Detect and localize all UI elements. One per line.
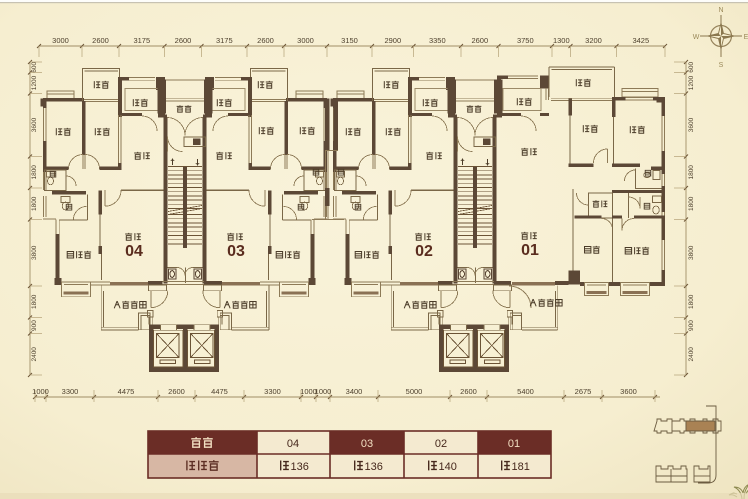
svg-text:03: 03 <box>361 438 373 450</box>
svg-text:3800: 3800 <box>31 245 38 260</box>
svg-text:3400: 3400 <box>346 387 363 396</box>
svg-text:2400: 2400 <box>688 347 695 362</box>
svg-text:2600: 2600 <box>460 387 477 396</box>
svg-text:4475: 4475 <box>211 387 228 396</box>
svg-text:3175: 3175 <box>216 36 233 45</box>
svg-text:900: 900 <box>31 320 38 331</box>
svg-text:N: N <box>718 7 723 14</box>
svg-text:1000: 1000 <box>32 387 49 396</box>
svg-text:2675: 2675 <box>575 387 592 396</box>
svg-text:3800: 3800 <box>688 245 695 260</box>
svg-text:136: 136 <box>365 461 383 473</box>
svg-text:3300: 3300 <box>62 387 79 396</box>
svg-text:5000: 5000 <box>406 387 423 396</box>
svg-text:3425: 3425 <box>632 36 649 45</box>
svg-text:3300: 3300 <box>264 387 281 396</box>
svg-text:2600: 2600 <box>92 36 109 45</box>
svg-text:600: 600 <box>31 61 38 72</box>
svg-text:4475: 4475 <box>118 387 135 396</box>
svg-text:1200: 1200 <box>688 75 695 90</box>
svg-text:1800: 1800 <box>31 165 38 180</box>
svg-text:W: W <box>693 34 700 41</box>
svg-text:3750: 3750 <box>517 36 534 45</box>
svg-text:1800: 1800 <box>31 196 38 211</box>
svg-text:3150: 3150 <box>341 36 358 45</box>
svg-text:2600: 2600 <box>257 36 274 45</box>
svg-text:181: 181 <box>512 461 530 473</box>
svg-text:03: 03 <box>227 243 245 260</box>
svg-text:04: 04 <box>125 243 143 260</box>
svg-text:2600: 2600 <box>175 36 192 45</box>
svg-text:1200: 1200 <box>31 75 38 90</box>
svg-text:2600: 2600 <box>168 387 185 396</box>
svg-text:04: 04 <box>287 438 299 450</box>
svg-text:900: 900 <box>688 320 695 331</box>
svg-text:01: 01 <box>521 242 539 259</box>
svg-text:02: 02 <box>435 438 447 450</box>
svg-text:3200: 3200 <box>585 36 602 45</box>
svg-text:1800: 1800 <box>688 196 695 211</box>
svg-text:S: S <box>719 62 724 69</box>
svg-text:136: 136 <box>291 461 309 473</box>
svg-text:1300: 1300 <box>553 36 570 45</box>
svg-text:2600: 2600 <box>471 36 488 45</box>
svg-text:2900: 2900 <box>384 36 401 45</box>
svg-text:3600: 3600 <box>620 387 637 396</box>
svg-text:3600: 3600 <box>31 117 38 132</box>
svg-text:02: 02 <box>415 243 433 260</box>
svg-text:1800: 1800 <box>688 165 695 180</box>
svg-text:1800: 1800 <box>31 294 38 309</box>
svg-text:2400: 2400 <box>31 347 38 362</box>
svg-text:3000: 3000 <box>52 36 69 45</box>
svg-text:3175: 3175 <box>133 36 150 45</box>
svg-text:01: 01 <box>508 438 520 450</box>
svg-text:1000: 1000 <box>315 387 332 396</box>
svg-text:E: E <box>744 34 748 41</box>
svg-text:600: 600 <box>688 61 695 72</box>
svg-text:3600: 3600 <box>688 117 695 132</box>
svg-text:5400: 5400 <box>517 387 534 396</box>
svg-text:140: 140 <box>439 461 457 473</box>
svg-text:3350: 3350 <box>429 36 446 45</box>
svg-text:1800: 1800 <box>688 294 695 309</box>
svg-text:3000: 3000 <box>297 36 314 45</box>
